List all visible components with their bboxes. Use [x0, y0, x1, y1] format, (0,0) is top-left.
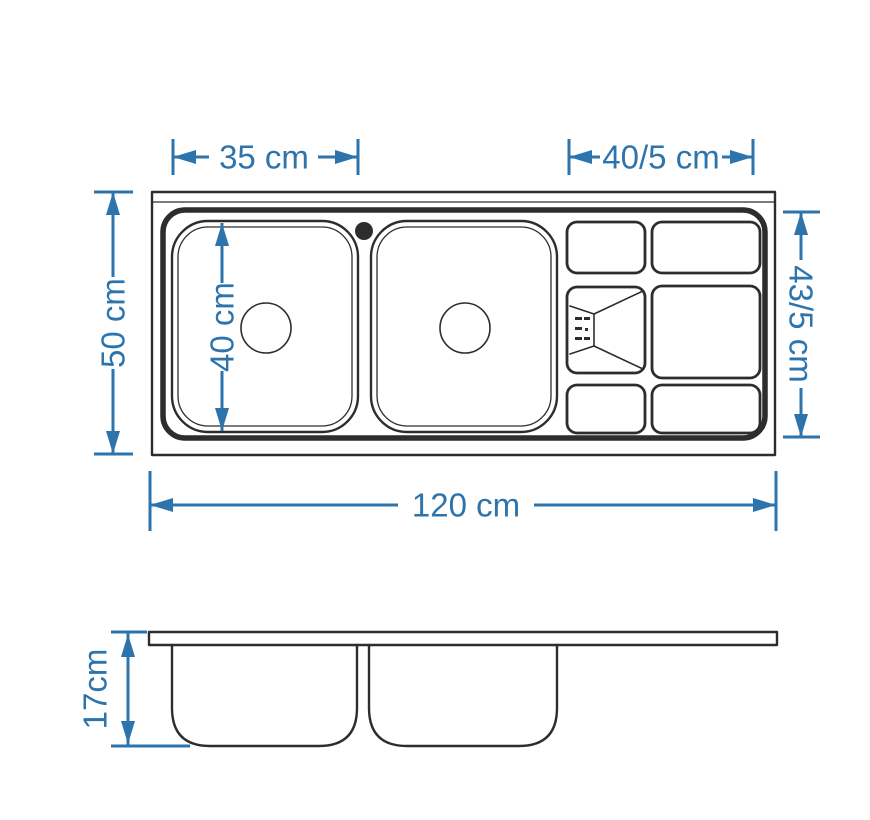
arrow-right-icon [730, 150, 753, 164]
dim-label-drainboard-width: 40/5 cm [602, 139, 719, 176]
dimension-drainboard-depth: 43/5 cm [783, 212, 821, 437]
arrow-left-icon [150, 498, 173, 512]
dim-label-drainboard-depth: 43/5 cm [783, 265, 820, 382]
side-view [149, 632, 777, 746]
dim-label-height: 17cm [77, 649, 114, 730]
arrow-up-icon [794, 212, 808, 235]
dim-label-overall-length: 120 cm [412, 487, 520, 524]
arrow-left-icon [173, 150, 196, 164]
arrow-down-icon [121, 721, 135, 744]
arrow-down-icon [106, 431, 120, 454]
sink-outer-edge [152, 192, 775, 455]
dim-label-bowl-depth: 40 cm [204, 282, 241, 372]
arrow-left-icon [569, 150, 592, 164]
arrow-down-icon [794, 414, 808, 437]
sink-technical-drawing: 35 cm 40/5 cm 50 cm 40 [0, 0, 870, 820]
arrow-up-icon [121, 634, 135, 657]
dimension-overall-depth: 50 cm [94, 192, 133, 454]
dimension-drainboard-width: 40/5 cm [569, 139, 753, 176]
arrow-up-icon [106, 192, 120, 215]
dimension-overall-length: 120 cm [150, 471, 776, 531]
arrow-right-icon [335, 150, 358, 164]
right-bowl-profile [369, 645, 557, 746]
dim-label-bowl-width: 35 cm [219, 139, 309, 176]
sink-top-slab-profile [149, 632, 777, 645]
top-view [152, 192, 775, 455]
drawing-canvas: 35 cm 40/5 cm 50 cm 40 [0, 0, 870, 820]
tap-hole [355, 222, 373, 240]
dim-label-overall-depth: 50 cm [95, 278, 132, 368]
left-bowl-profile [172, 645, 357, 746]
arrow-right-icon [753, 498, 776, 512]
dimension-bowl-width: 35 cm [173, 139, 358, 176]
